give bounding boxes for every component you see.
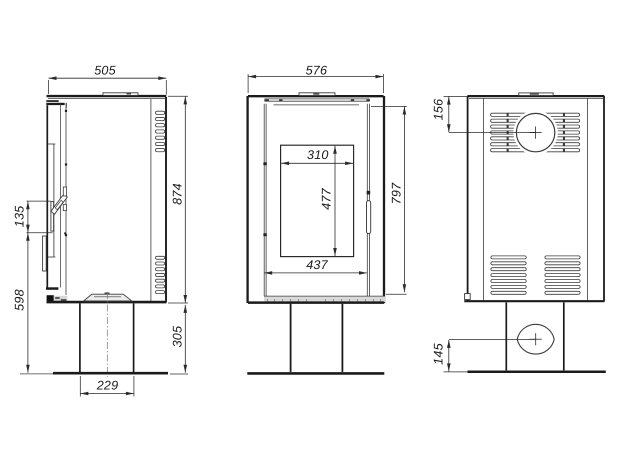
svg-text:598: 598 [12,289,26,311]
svg-text:156: 156 [431,99,445,121]
svg-text:135: 135 [12,205,26,227]
svg-text:310: 310 [307,148,329,162]
svg-text:797: 797 [389,182,403,204]
svg-text:505: 505 [94,63,116,77]
svg-text:874: 874 [171,183,185,205]
svg-text:477: 477 [320,187,334,209]
svg-text:305: 305 [171,325,185,347]
svg-text:437: 437 [306,258,328,272]
svg-text:576: 576 [306,64,328,78]
svg-text:145: 145 [431,342,445,364]
svg-text:229: 229 [96,379,119,393]
